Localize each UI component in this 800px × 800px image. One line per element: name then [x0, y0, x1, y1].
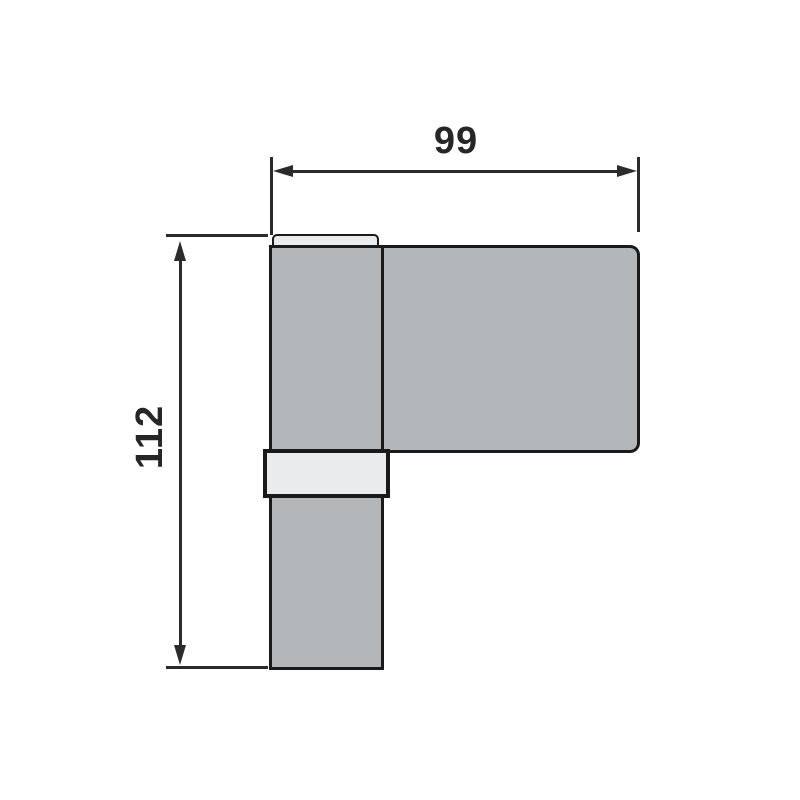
width-arrowhead-right-icon: [617, 165, 637, 177]
width-dimension-label: 99: [274, 122, 638, 160]
width-extension-line-left: [270, 157, 273, 235]
width-extension-line-right: [637, 157, 640, 232]
height-arrowhead-bottom-icon: [174, 645, 186, 665]
height-extension-line-bottom: [166, 666, 268, 669]
hinge-leaf-plate: [381, 245, 640, 453]
hinge-pin-body-upper: [269, 245, 384, 453]
dimension-drawing-canvas: 99 112: [0, 0, 800, 800]
hinge-knuckle-band: [263, 449, 390, 498]
height-extension-line-top: [166, 234, 268, 237]
height-dimension-line: [179, 255, 182, 650]
height-dimension-label: 112: [131, 405, 169, 469]
hinge-pin-body-lower: [269, 493, 384, 670]
width-arrowhead-left-icon: [273, 165, 293, 177]
height-arrowhead-top-icon: [174, 241, 186, 261]
width-dimension-line: [285, 170, 625, 173]
